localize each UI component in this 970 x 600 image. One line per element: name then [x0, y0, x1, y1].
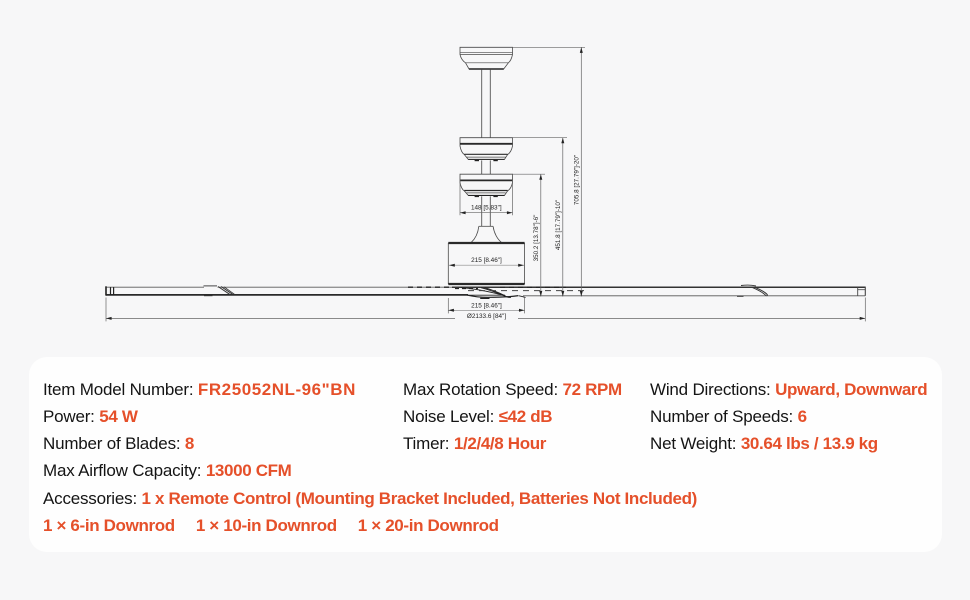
svg-text:215 [8.46"]: 215 [8.46"]	[471, 257, 502, 264]
svg-text:451.8 [17.79"]-10": 451.8 [17.79"]-10"	[555, 200, 562, 250]
svg-text:350.2 [13.78"]-6": 350.2 [13.78"]-6"	[533, 215, 540, 262]
svg-text:215 [8.46"]: 215 [8.46"]	[471, 302, 502, 309]
svg-text:148 [5.83"]: 148 [5.83"]	[471, 205, 502, 212]
svg-text:Ø2133.6 [84"]: Ø2133.6 [84"]	[467, 313, 506, 320]
svg-text:705.8 [27.79"]-20": 705.8 [27.79"]-20"	[573, 155, 580, 205]
